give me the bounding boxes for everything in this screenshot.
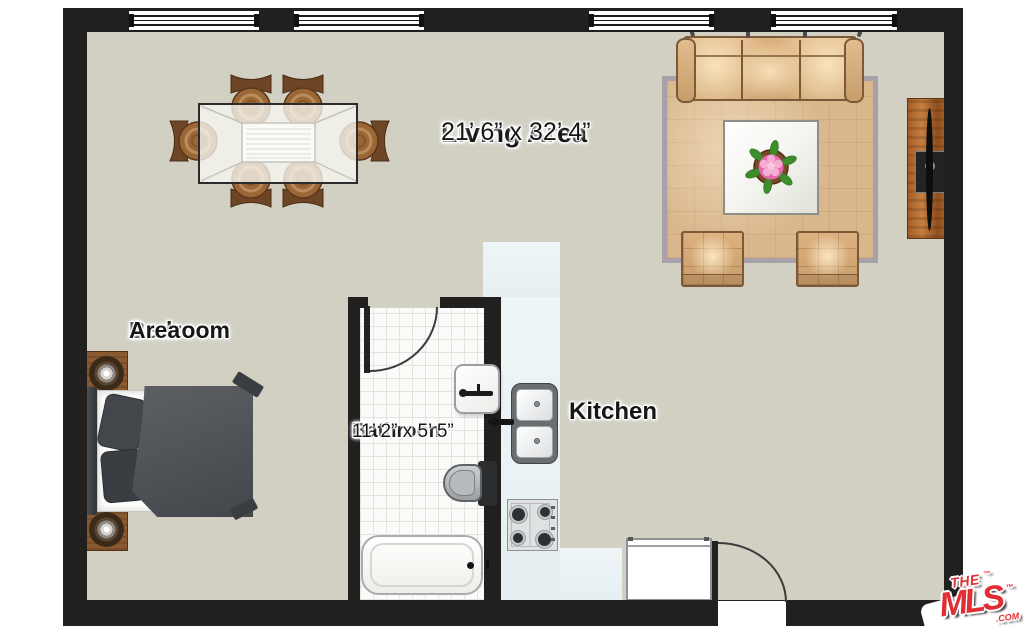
trademark-icon: ™: [983, 570, 991, 578]
window-icon: [128, 10, 260, 31]
entry-door-opening: [718, 601, 786, 626]
floor-plan: Living Area 21’ 6” x 32’ 4” Bedroom Area…: [0, 0, 1024, 641]
refrigerator-door-line: [628, 545, 710, 547]
tv-console: [907, 98, 948, 239]
lamp-icon: [89, 512, 124, 547]
window-icon: [588, 10, 715, 31]
sofa-arm-right: [844, 38, 864, 103]
bedroom-area-name-line2: Area: [129, 316, 180, 344]
wall-left: [63, 8, 87, 626]
sink-drain: [534, 401, 540, 407]
kitchen-counter: [483, 242, 560, 297]
refrigerator-hinge: [628, 537, 633, 541]
sofa-back-seam: [684, 55, 856, 57]
faucet-icon: [459, 389, 467, 397]
faucet-icon: [477, 384, 480, 392]
sofa: [683, 36, 857, 101]
sofa-cushion-seam: [799, 40, 801, 100]
stove-knob: [551, 538, 555, 541]
bathroom-dimensions: 11’ 2” x 5’ 5”: [352, 419, 454, 444]
entry-door: [712, 541, 718, 602]
toilet-seat: [449, 470, 475, 496]
faucet-icon: [495, 419, 514, 425]
bed-duvet: [127, 386, 253, 517]
wall-right: [944, 8, 963, 626]
window-icon: [293, 10, 425, 31]
kitchen-name: Kitchen: [569, 398, 657, 426]
dining-set: [160, 60, 400, 230]
sink-drain: [534, 438, 540, 444]
burner-icon: [538, 533, 551, 546]
refrigerator: [626, 538, 712, 601]
stove-knob: [551, 516, 555, 519]
burner-icon: [513, 533, 523, 543]
tub-faucet-icon: [486, 560, 489, 569]
window-icon: [770, 10, 898, 31]
tub-faucet-icon: [467, 562, 474, 569]
wall-bottom: [63, 600, 963, 626]
refrigerator-hinge: [704, 537, 709, 541]
tv-screen: [926, 108, 933, 231]
ottoman-right: [796, 231, 859, 287]
living-area-dimensions: 21’ 6” x 32’ 4”: [441, 119, 591, 146]
bathroom-wall: [484, 297, 501, 600]
flower-pot-icon: [739, 135, 803, 199]
stove-knob: [551, 506, 555, 509]
bathroom-door: [364, 306, 370, 373]
burner-icon: [512, 508, 525, 521]
kitchen-counter: [560, 548, 622, 600]
lamp-icon: [89, 356, 124, 391]
burner-icon: [540, 507, 550, 517]
logo-com-text: .COM: [995, 611, 1020, 624]
themls-logo: THE ™ MLS ™ .COM: [934, 568, 1024, 641]
stove-knob: [551, 527, 555, 530]
bathroom-wall: [348, 297, 360, 600]
trademark-icon: ™: [1005, 582, 1014, 592]
sofa-cushion-seam: [741, 40, 743, 100]
sofa-arm-left: [676, 38, 696, 103]
ottoman-left: [681, 231, 744, 287]
bathtub: [361, 535, 483, 595]
